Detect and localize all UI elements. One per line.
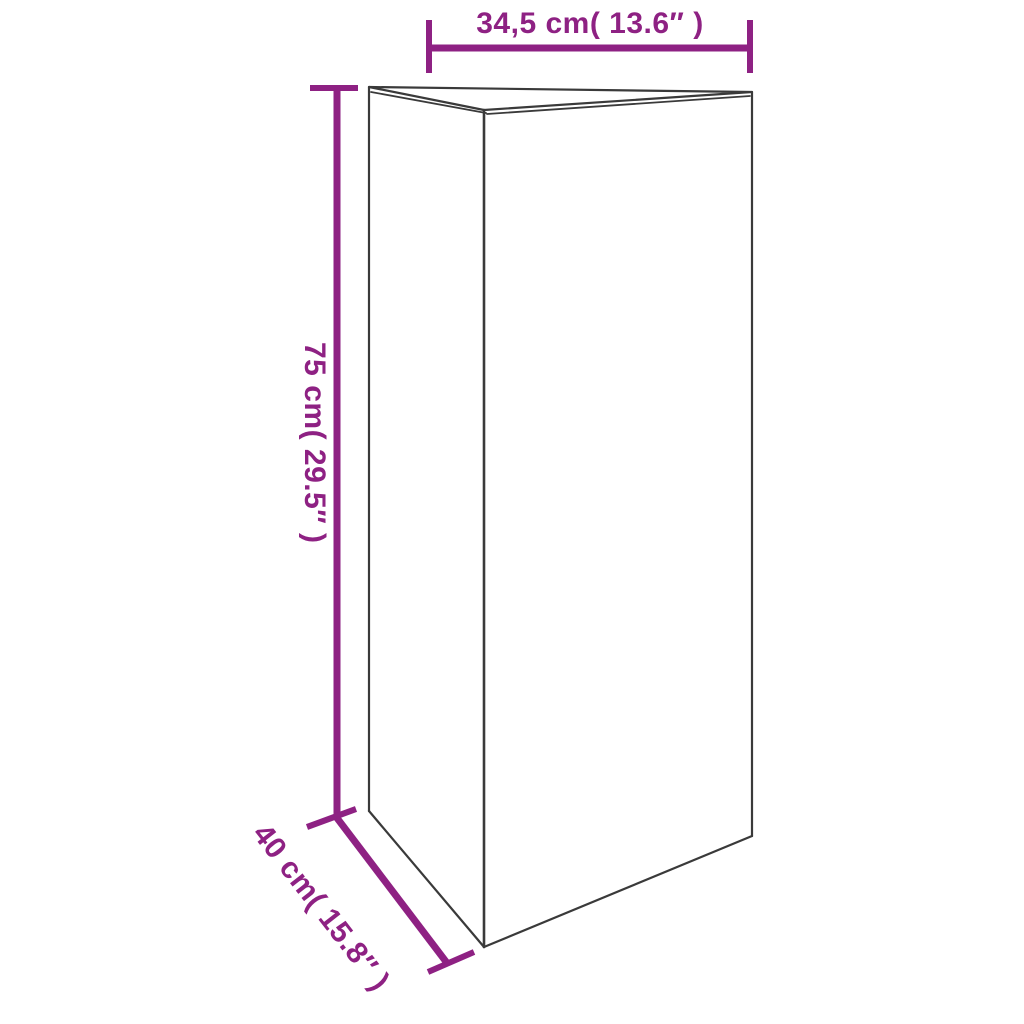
prism-bottom-right-edge — [484, 836, 752, 947]
dimension-diagram: 34,5 cm( 13.6″ ) 75 cm( 29.5″ ) 40 cm( 1… — [0, 0, 1024, 1024]
prism-top-face — [369, 87, 752, 110]
diagram-line-layer — [0, 0, 1024, 1024]
height-depth-shared-tick — [307, 809, 356, 827]
prism-rim-inner-left-edge — [371, 92, 486, 113]
prism-outline — [369, 87, 752, 947]
height-dimension-label: 75 cm( 29.5″ ) — [298, 342, 331, 543]
prism-rim-inner-front-edge — [487, 96, 750, 114]
depth-dimension-end-tick — [428, 952, 474, 972]
width-dimension-label: 34,5 cm( 13.6″ ) — [430, 7, 750, 40]
